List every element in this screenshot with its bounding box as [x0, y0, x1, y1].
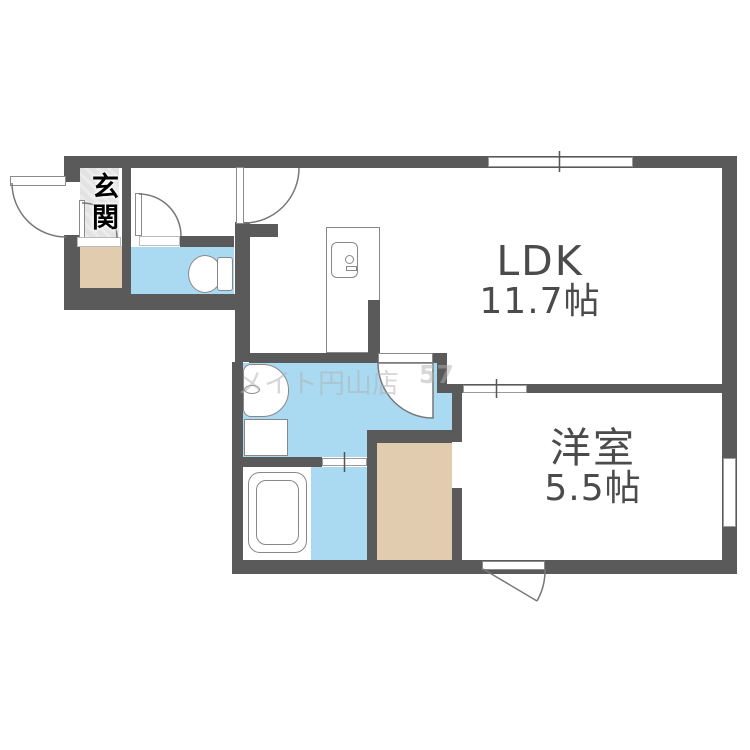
- wall-closet-north: [367, 430, 453, 443]
- bedroom-label-group: 洋室 5.5帖: [482, 426, 704, 509]
- wall-north: [64, 156, 737, 168]
- ldk-door-leaf: [236, 167, 244, 224]
- wall-toilet-north: [180, 236, 234, 247]
- watermark-number: 57: [419, 360, 454, 389]
- bedroom-area: 5.5帖: [482, 470, 704, 509]
- floorplan-canvas: LDK 11.7帖 洋室 5.5帖 玄関 メイト円山店 57: [0, 0, 750, 750]
- window-north: [488, 157, 633, 167]
- toilet-door-threshold: [139, 236, 180, 246]
- bathroom-sliding-door: [322, 458, 367, 466]
- watermark-text: メイト円山店: [237, 362, 399, 401]
- washing-machine-pan: [244, 419, 288, 456]
- kitchen-faucet-icon: [345, 255, 354, 264]
- wall-closet-west: [367, 430, 377, 562]
- wall-entrance-hall: [122, 168, 131, 296]
- wall-washroom-south: [232, 457, 322, 467]
- entrance-door-swing: [12, 183, 66, 237]
- bedroom-label: 洋室: [482, 426, 704, 470]
- toilet-door-swing: [139, 194, 181, 236]
- ldk-label: LDK: [430, 239, 650, 283]
- ldk-door-swing: [244, 168, 299, 223]
- entrance-door-opening: [64, 182, 80, 235]
- bedroom-sliding-door: [463, 385, 527, 393]
- bathtub-inner-icon: [256, 480, 299, 545]
- kitchen-faucet-spout: [346, 266, 357, 271]
- wall-center-column-upper: [235, 222, 250, 362]
- wall-left-block-bottom-b: [131, 294, 250, 310]
- wall-left-block-bottom-a: [64, 288, 131, 310]
- kitchen-wall-pillar: [368, 300, 380, 353]
- window-east: [723, 458, 736, 527]
- closet-opening: [452, 442, 462, 488]
- entrance-label: 玄関: [83, 172, 122, 238]
- toilet-tank-icon: [217, 257, 233, 291]
- shoe-storage-threshold: [77, 237, 121, 247]
- wall-door-stub: [249, 224, 278, 237]
- toilet-door-leaf: [135, 193, 142, 236]
- bedroom-closet: [377, 443, 452, 562]
- bedroom-exterior-door-leaf: [482, 561, 545, 570]
- ldk-area: 11.7帖: [430, 283, 650, 322]
- washroom-floor-corner: [437, 393, 452, 430]
- entrance-shoe-storage: [76, 246, 122, 288]
- ldk-label-group: LDK 11.7帖: [430, 239, 650, 322]
- entrance-door-leaf: [10, 176, 66, 186]
